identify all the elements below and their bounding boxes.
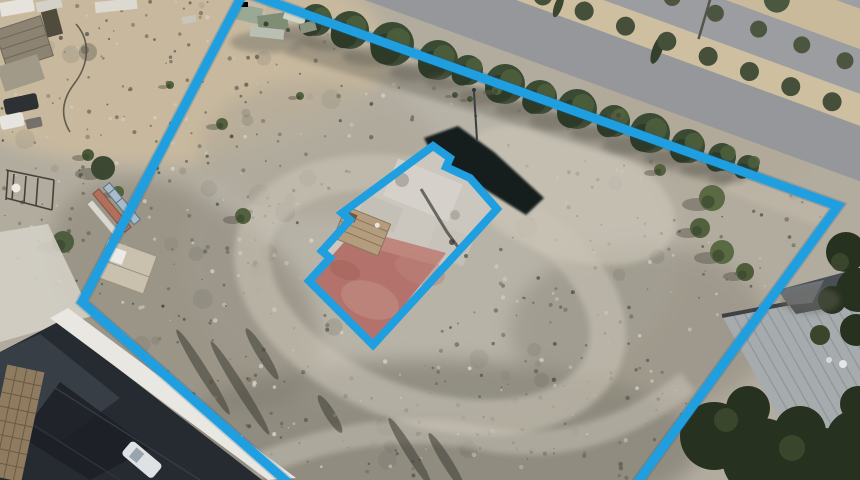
slab-debris <box>449 239 455 245</box>
soil-stain <box>81 46 89 54</box>
screenshot-stage <box>0 0 860 480</box>
rooftop-unit <box>839 360 847 368</box>
aerial-photo <box>0 0 860 480</box>
pole-top <box>472 88 476 92</box>
rooftop-unit <box>826 357 832 363</box>
slab-debris <box>464 254 468 258</box>
